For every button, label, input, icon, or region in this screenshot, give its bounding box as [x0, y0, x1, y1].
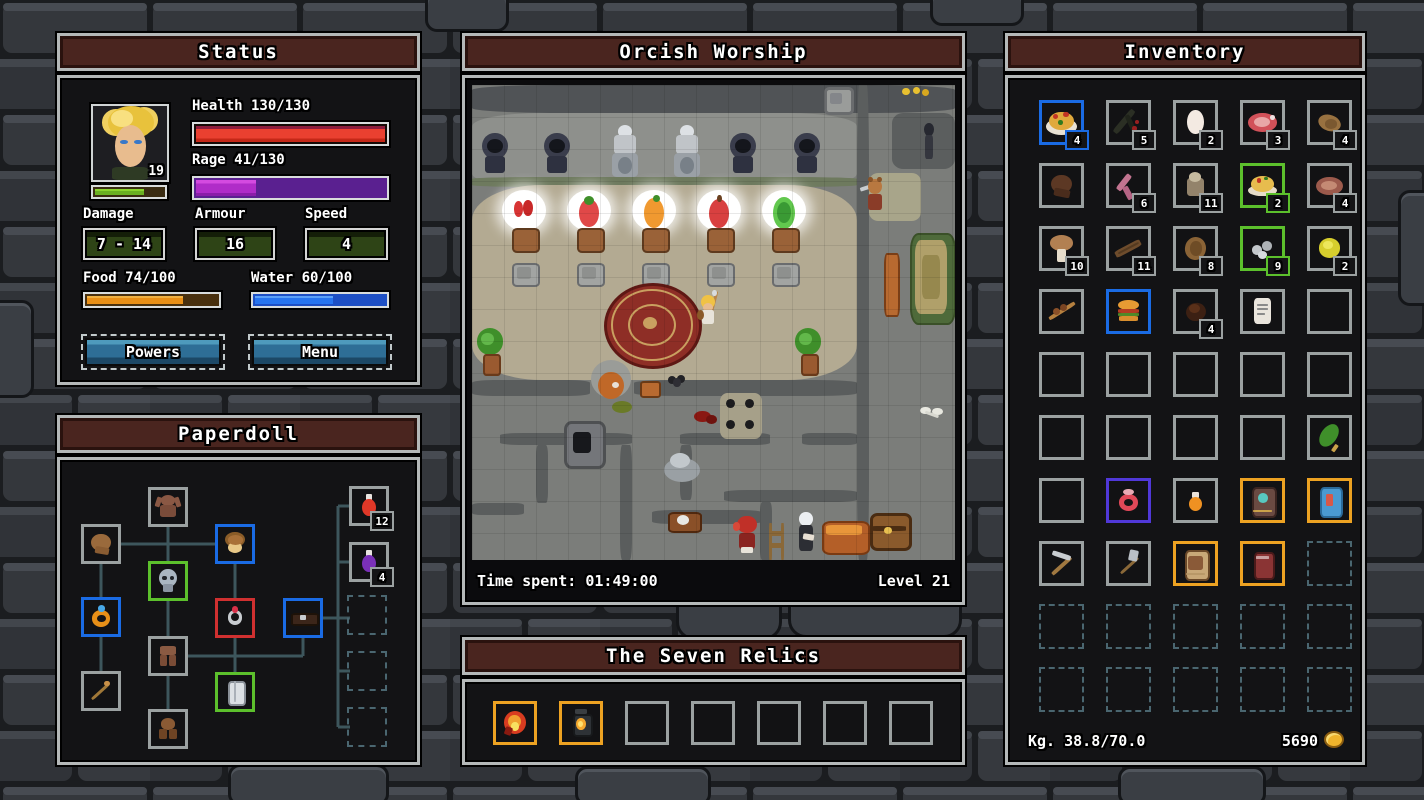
game-viewport-frame: Time spent: 01:49:00 Level 21	[462, 75, 965, 605]
icon-part	[1325, 119, 1337, 128]
altar-bench	[822, 521, 866, 551]
damage-label: Damage	[83, 206, 134, 222]
icon-part	[647, 267, 660, 278]
icon-part	[777, 202, 791, 223]
inventory-slot-jerky[interactable]: 4	[1173, 289, 1218, 334]
inventory-slot-empty[interactable]	[1240, 415, 1285, 460]
priest-npc	[792, 511, 820, 555]
icon-part	[922, 255, 940, 299]
icon-part	[612, 401, 632, 413]
carry-weight: Kg. 38.8/70.0	[1028, 732, 1145, 750]
cooked-meat-count-badge: 4	[1333, 193, 1357, 213]
gloves-icon	[84, 527, 118, 561]
inventory-slot-stones[interactable]: 9	[1240, 226, 1285, 271]
pressure-plate	[642, 263, 666, 283]
boots-icon	[151, 712, 185, 746]
icon-part	[826, 525, 863, 535]
wall-sign	[640, 381, 657, 394]
icon-part	[830, 93, 842, 104]
inventory-grid: 452346112410118924	[1039, 100, 1352, 712]
maze-wall	[620, 445, 632, 560]
paperdoll-slot-locked	[347, 707, 387, 747]
maze-wall	[802, 433, 857, 445]
icon-part	[1323, 241, 1332, 249]
inventory-slot-empty[interactable]	[1039, 478, 1084, 523]
orc-enemy	[860, 177, 890, 215]
decor-stone	[228, 764, 389, 800]
icon-part	[1256, 556, 1268, 558]
relics-title: The Seven Relics	[606, 645, 821, 667]
relic-slot-lantern-relic[interactable]	[559, 701, 603, 745]
icon-part	[112, 167, 148, 180]
ring-icon	[84, 600, 118, 634]
icon-part	[481, 333, 494, 346]
icon-part	[1262, 241, 1272, 250]
icon-part	[1253, 510, 1272, 512]
status-title-bar: Status	[57, 33, 420, 71]
treasure-chest	[870, 513, 906, 545]
water-bar	[251, 292, 389, 308]
relic-slot-empty[interactable]	[889, 701, 933, 745]
icon-part	[924, 123, 934, 137]
inventory-slot-empty[interactable]	[1039, 415, 1084, 460]
icon-part	[1119, 316, 1138, 321]
icon-part	[709, 199, 729, 228]
icon-part	[769, 523, 772, 560]
sulfur-ore-count-badge: 2	[1333, 256, 1357, 276]
icon-part	[1052, 550, 1071, 561]
icon-part	[1331, 443, 1338, 451]
altar-cherries	[508, 197, 540, 249]
inventory-slot-wood-log[interactable]: 11	[1106, 226, 1151, 271]
icon-part	[104, 681, 109, 686]
icon-part	[677, 515, 689, 525]
icon-part	[485, 156, 505, 174]
inventory-slot-green-feather[interactable]	[1307, 415, 1352, 460]
relic-slot-empty[interactable]	[625, 701, 669, 745]
armour-value: 16	[195, 228, 275, 260]
icon-part	[160, 505, 176, 517]
paperdoll-slot-head[interactable]	[215, 524, 255, 564]
inventory-slot-pickaxe[interactable]	[1039, 541, 1084, 586]
moss-stain	[612, 401, 632, 413]
inventory-slot-scroll[interactable]	[1240, 289, 1285, 334]
top-wall	[472, 85, 955, 113]
legs-icon	[151, 639, 185, 673]
inventory-slot-red-ring[interactable]	[1106, 478, 1151, 523]
brazier-urn	[542, 133, 572, 177]
icon-part	[228, 535, 244, 545]
armor-statue	[670, 125, 704, 181]
inventory-slot-locked	[1039, 604, 1084, 649]
inventory-slot-moon-tome[interactable]	[1240, 478, 1285, 523]
right-wall-divider	[857, 85, 869, 560]
icon-part	[1257, 304, 1269, 306]
icon-part	[549, 139, 565, 153]
gold-value: 5690	[1282, 732, 1318, 750]
icon-part	[472, 380, 590, 396]
icon-part	[161, 718, 176, 730]
icon-part	[94, 546, 109, 556]
paperdoll-title-bar: Paperdoll	[57, 415, 420, 453]
icon-part	[514, 201, 524, 217]
icon-part	[642, 228, 670, 253]
pressure-plate	[824, 87, 848, 109]
paperdoll-slot-shield[interactable]	[215, 672, 255, 712]
icon-part	[741, 547, 753, 553]
gold-coin-icon	[1324, 731, 1344, 748]
inventory-slot-mushroom[interactable]: 10	[1039, 226, 1084, 271]
powers-button[interactable]: Powers	[85, 338, 221, 366]
maze-wall	[472, 380, 590, 396]
jerky-count-badge: 4	[1199, 319, 1223, 339]
inventory-slot-burger[interactable]	[1106, 289, 1151, 334]
bones	[920, 403, 944, 421]
dark-statue	[920, 121, 938, 161]
icon-part	[160, 655, 167, 667]
icon-part	[726, 420, 735, 429]
relic-slot-fire-relic[interactable]	[493, 701, 537, 745]
character-level: 19	[148, 164, 164, 179]
gold-pile	[902, 87, 932, 99]
icon-part	[620, 445, 632, 560]
food-bar	[83, 292, 221, 308]
carpet	[910, 233, 952, 321]
icon-part	[925, 135, 934, 159]
paperdoll-panel: 124	[57, 457, 420, 765]
maze-wall	[724, 490, 857, 502]
inventory-slot-raw-steak[interactable]: 3	[1240, 100, 1285, 145]
red-potion-count-badge: 12	[370, 511, 394, 531]
inventory-slot-axe[interactable]	[1106, 541, 1151, 586]
door	[588, 369, 634, 401]
icon-part	[706, 415, 717, 423]
player-character	[694, 293, 722, 331]
icon-part	[1135, 120, 1139, 124]
inventory-slot-worm[interactable]: 6	[1106, 163, 1151, 208]
blood-stain	[694, 411, 718, 425]
paperdoll-slot-belt[interactable]	[283, 598, 323, 638]
maze-wall	[472, 503, 524, 515]
paperdoll-slot-legs[interactable]	[148, 636, 188, 676]
leather-glove-icon	[1042, 166, 1081, 205]
relic-slot-row	[493, 701, 933, 745]
icon-part	[487, 139, 503, 153]
inventory-slot-fire-flask[interactable]	[1173, 478, 1218, 523]
icon-part	[234, 681, 236, 701]
icon-part	[162, 576, 166, 580]
wood-log-count-badge: 11	[1132, 256, 1156, 276]
icon-part	[547, 156, 567, 174]
inventory-slot-cooked-meat[interactable]: 4	[1307, 163, 1352, 208]
icon-part	[1060, 304, 1067, 311]
icon-part	[472, 503, 524, 515]
moon-tome-icon	[1243, 481, 1282, 520]
dungeon-level: Level 21	[878, 572, 950, 590]
pressure-plate	[707, 263, 731, 283]
paperdoll-slot-armor[interactable]	[148, 561, 188, 601]
icon-part	[1257, 178, 1261, 182]
icon-part	[483, 354, 501, 376]
inventory-slot-locked	[1173, 604, 1218, 649]
dark-bow-count-badge: 5	[1132, 130, 1156, 150]
menu-button[interactable]: Menu	[252, 338, 388, 366]
paperdoll-slot-locked	[347, 595, 387, 635]
inventory-slot-dark-bow[interactable]: 5	[1106, 100, 1151, 145]
icon-part	[712, 267, 725, 278]
icon-part	[717, 195, 721, 202]
icon-part	[735, 139, 751, 153]
icon-part	[902, 88, 910, 95]
armour-label: Armour	[195, 206, 246, 222]
decor-stone	[1118, 766, 1266, 800]
inventory-slot-tuber[interactable]: 4	[1307, 100, 1352, 145]
inventory-slot-omelette[interactable]: 2	[1240, 163, 1285, 208]
icon-part	[1053, 114, 1058, 119]
menu-button-frame: Menu	[248, 334, 392, 370]
inventory-slot-hide[interactable]: 8	[1173, 226, 1218, 271]
inventory-slot-sulfur-ore[interactable]: 2	[1307, 226, 1352, 271]
inventory-footer: Kg. 38.8/70.0 5690	[1028, 731, 1344, 750]
icon-part	[640, 381, 661, 398]
skull-plaque	[668, 512, 698, 529]
icon-part	[799, 512, 812, 526]
paperdoll-slot-body[interactable]	[148, 487, 188, 527]
relics-panel	[462, 679, 965, 765]
inventory-slot-empty[interactable]	[1173, 352, 1218, 397]
altar-orange	[638, 197, 670, 249]
armor-statue	[608, 125, 642, 181]
shield-icon	[218, 675, 252, 709]
paperdoll-slot-weapon[interactable]	[81, 671, 121, 711]
fire-flask-icon	[1176, 481, 1215, 520]
inventory-slot-egg[interactable]: 2	[1173, 100, 1218, 145]
green-feather-icon	[1310, 418, 1349, 457]
inventory-slot-tan-tome[interactable]	[1173, 541, 1218, 586]
maze-wall	[536, 445, 548, 503]
icon-part	[733, 156, 753, 174]
dotted-tile	[720, 393, 762, 439]
icon-part	[598, 372, 624, 400]
inventory-slot-locked	[1240, 604, 1285, 649]
inventory-slot-empty[interactable]	[1039, 352, 1084, 397]
red-tome-icon	[1243, 544, 1282, 583]
raw-steak-count-badge: 3	[1266, 130, 1290, 150]
scroll-icon	[1243, 292, 1282, 331]
water-label: Water 60/100	[251, 270, 352, 286]
inventory-slot-roast-skewer[interactable]	[1039, 289, 1084, 334]
icon-part	[680, 157, 694, 174]
inventory-slot-red-tome[interactable]	[1240, 541, 1285, 586]
status-panel: 19 Health 130/130 Rage 41/130 Damage 7 -…	[57, 75, 420, 385]
icon-part	[1326, 494, 1332, 506]
icon-part	[868, 194, 881, 210]
icon-part	[769, 531, 784, 535]
decor-stone	[0, 300, 34, 398]
icon-part	[504, 726, 513, 735]
inventory-slot-locked	[1240, 667, 1285, 712]
tan-tome-icon	[1176, 544, 1215, 583]
icon-part	[1315, 421, 1343, 451]
icon-part	[781, 523, 784, 560]
inventory-slot-leather-glove[interactable]	[1039, 163, 1084, 208]
icon-part	[673, 378, 680, 387]
boulder	[664, 453, 700, 483]
paperdoll-title: Paperdoll	[178, 423, 299, 445]
icon-part	[228, 681, 247, 705]
icon-part	[724, 490, 857, 502]
icon-part	[1188, 556, 1202, 570]
axe-icon	[1109, 544, 1148, 583]
magic-circle	[604, 283, 696, 363]
altar-apple	[703, 197, 735, 249]
icon-part	[702, 310, 713, 324]
brazier-urn	[480, 133, 510, 177]
omelette-count-badge: 2	[1266, 193, 1290, 213]
paperdoll-slot-ring[interactable]	[81, 597, 121, 637]
icon-part	[115, 125, 146, 166]
inventory-slot-empty[interactable]	[1307, 289, 1352, 334]
icon-part	[712, 290, 716, 296]
icon-part	[1189, 497, 1202, 511]
altar-strawberry	[573, 197, 605, 249]
icon-part	[169, 729, 177, 739]
relic-slot-empty[interactable]	[823, 701, 867, 745]
pressure-plate	[512, 263, 536, 283]
pressure-plate	[577, 263, 601, 283]
tuber-count-badge: 4	[1333, 130, 1357, 150]
fire-relic-icon	[496, 704, 534, 742]
worm-count-badge: 6	[1132, 193, 1156, 213]
inventory-slot-empty[interactable]	[1106, 415, 1151, 460]
inventory-slot-locked	[1106, 604, 1151, 649]
game-world-view[interactable]	[472, 85, 955, 560]
icon-part	[802, 433, 857, 445]
relic-slot-empty[interactable]	[691, 701, 735, 745]
decor-stone	[575, 766, 711, 800]
well	[564, 421, 600, 463]
status-title: Status	[198, 41, 279, 63]
altar-watermelon	[768, 197, 800, 249]
paperdoll-slot-amulet[interactable]	[215, 598, 255, 638]
icon-part	[857, 85, 869, 560]
character-portrait: 19	[91, 104, 169, 182]
burger-icon	[1109, 292, 1148, 331]
paperdoll-slot-red-potion[interactable]: 12	[349, 486, 389, 526]
belt-icon	[286, 601, 320, 635]
icon-part	[170, 576, 174, 580]
icon-part	[769, 543, 784, 547]
gold-amount: 5690	[1282, 731, 1344, 750]
decor-stone	[1398, 190, 1424, 306]
inventory-slot-locked	[1307, 541, 1352, 586]
icon-part	[512, 228, 540, 253]
inventory-slot-noodle-dish[interactable]: 4	[1039, 100, 1084, 145]
egg-count-badge: 2	[1199, 130, 1223, 150]
icon-part	[1186, 573, 1205, 575]
icon-part	[1058, 120, 1063, 125]
potted-plant	[792, 328, 824, 374]
icon-part	[111, 110, 133, 126]
brazier-urn	[792, 133, 822, 177]
lantern-relic-icon	[562, 704, 600, 742]
health-label: Health 130/130	[192, 98, 310, 114]
inventory-title-bar: Inventory	[1005, 33, 1365, 71]
icon-part	[1063, 112, 1068, 117]
inventory-slot-locked	[1106, 667, 1151, 712]
icon-part	[737, 516, 756, 534]
inventory-slot-empty[interactable]	[1240, 352, 1285, 397]
relic-slot-empty[interactable]	[757, 701, 801, 745]
pressure-plate	[772, 263, 796, 283]
speed-label: Speed	[305, 206, 347, 222]
icon-part	[536, 445, 548, 503]
roast-skewer-icon	[1042, 292, 1081, 331]
brazier-urn	[728, 133, 758, 177]
icon-part	[517, 267, 530, 278]
paperdoll-slot-boots[interactable]	[148, 709, 188, 749]
icon-part	[799, 333, 812, 346]
armor-icon	[151, 564, 185, 598]
icon-part	[726, 399, 735, 408]
inventory-slot-locked	[1307, 604, 1352, 649]
icon-part	[1257, 313, 1266, 315]
icon-part	[160, 646, 176, 655]
icon-part	[159, 729, 167, 739]
game-screen: { "status": { "title": "Status", "level"…	[0, 0, 1424, 800]
xp-bar	[91, 185, 167, 199]
potted-plant	[474, 328, 506, 374]
icon-part	[1321, 181, 1337, 190]
inventory-slot-locked	[1307, 667, 1352, 712]
icon-part	[577, 228, 605, 253]
rage-bar	[192, 176, 389, 200]
location-title: Orcish Worship	[619, 41, 807, 63]
inventory-slot-empty[interactable]	[1173, 415, 1218, 460]
inventory-slot-empty[interactable]	[1307, 352, 1352, 397]
icon-part	[777, 267, 790, 278]
relics-title-bar: The Seven Relics	[462, 637, 965, 675]
noodle-dish-count-badge: 4	[1065, 130, 1089, 150]
paperdoll-slot-gloves[interactable]	[81, 524, 121, 564]
icon-part	[797, 156, 817, 174]
icon-part	[578, 721, 583, 727]
inventory-slot-empty[interactable]	[1106, 352, 1151, 397]
icon-part	[163, 584, 174, 591]
icon-part	[300, 615, 305, 621]
inventory-slot-flour-sack[interactable]: 11	[1173, 163, 1218, 208]
icon-part	[573, 432, 592, 453]
health-bar	[192, 122, 389, 146]
pickaxe-icon	[1042, 544, 1081, 583]
ladder	[768, 523, 786, 560]
icon-part	[884, 253, 900, 317]
red-ring-icon	[1109, 481, 1148, 520]
weapon-icon	[84, 674, 118, 708]
paperdoll-slot-purple-potion[interactable]: 4	[349, 542, 389, 582]
icon-part	[1251, 176, 1274, 192]
stones-count-badge: 9	[1266, 256, 1290, 276]
icon-part	[799, 139, 815, 153]
icon-part	[582, 267, 595, 278]
head-icon	[218, 527, 252, 561]
icon-part	[922, 89, 930, 96]
speed-value: 4	[305, 228, 388, 260]
icon-part	[913, 87, 921, 94]
teal-tome-icon	[1310, 481, 1349, 520]
inventory-slot-teal-tome[interactable]	[1307, 478, 1352, 523]
bench	[884, 253, 896, 313]
